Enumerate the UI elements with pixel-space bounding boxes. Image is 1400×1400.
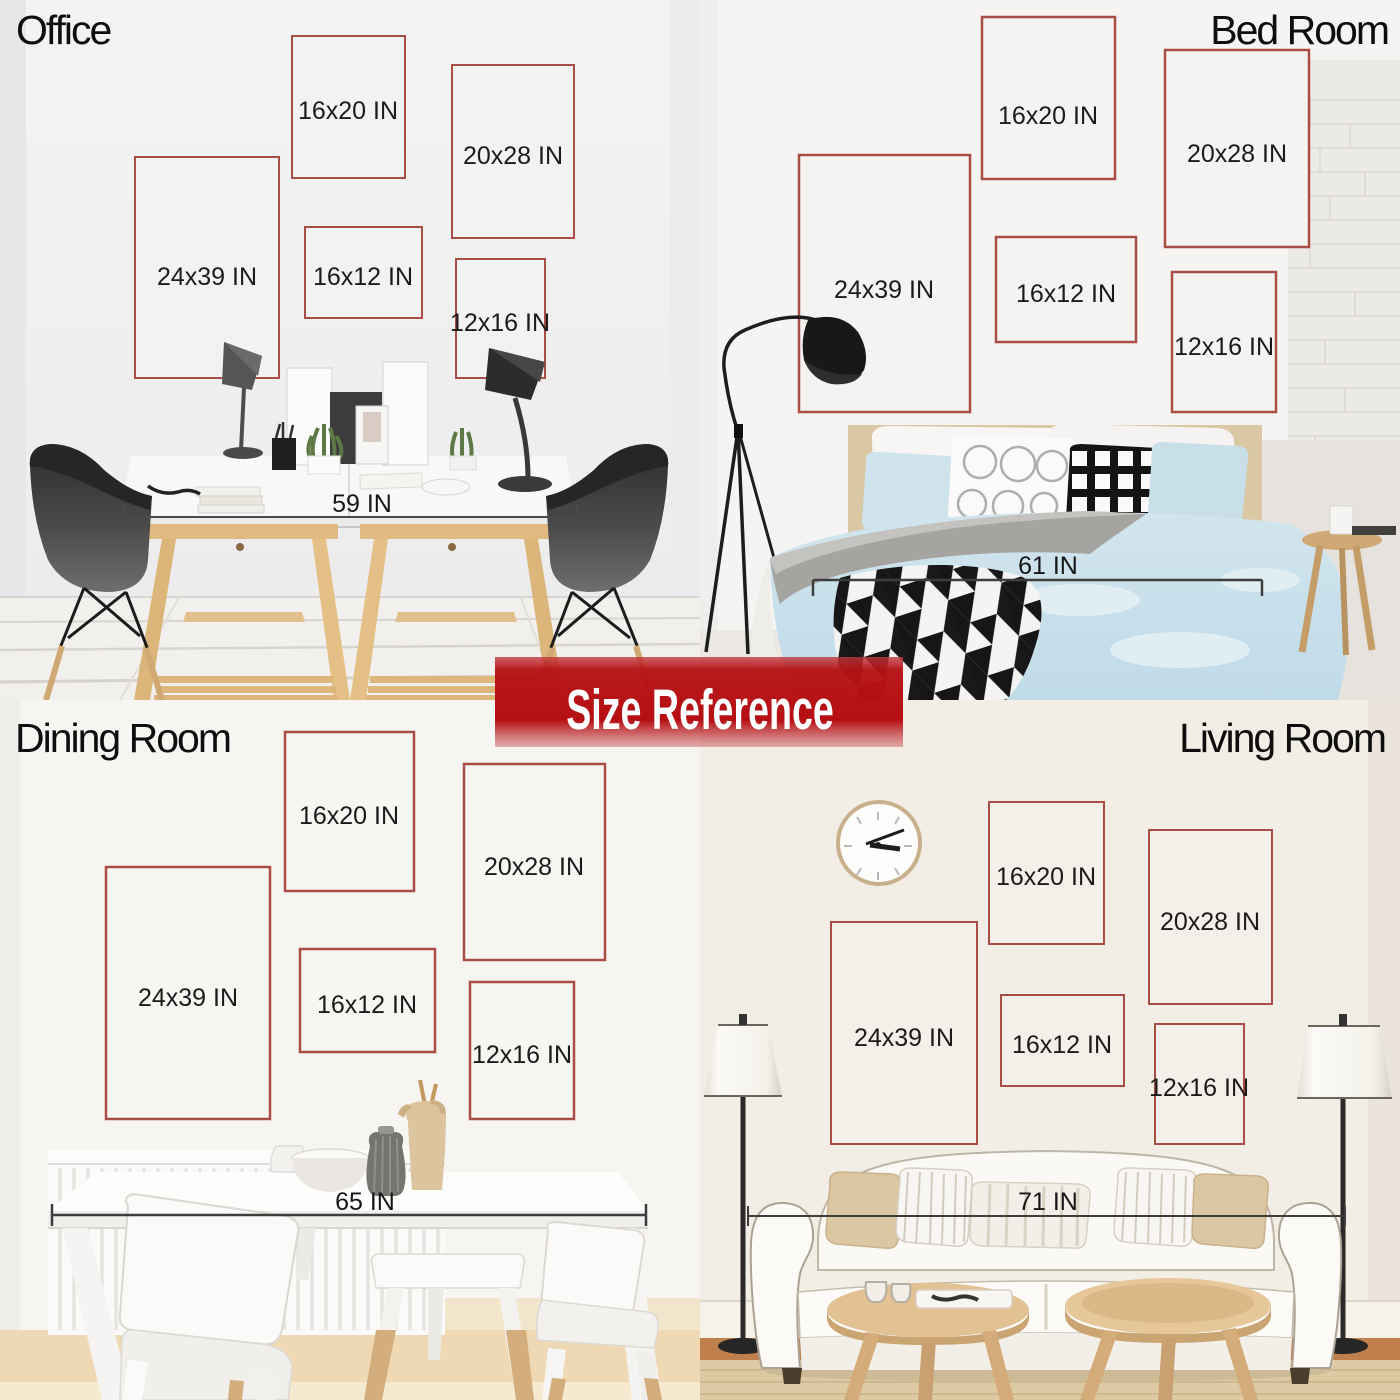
svg-text:71 IN: 71 IN [1018,1188,1078,1216]
svg-text:12x16 IN: 12x16 IN [472,1041,572,1069]
svg-text:20x28 IN: 20x28 IN [1187,140,1287,168]
svg-text:Dining Room: Dining Room [15,715,230,761]
svg-text:16x12 IN: 16x12 IN [317,991,417,1019]
svg-text:24x39 IN: 24x39 IN [138,984,238,1012]
svg-text:Size Reference: Size Reference [566,678,834,742]
svg-text:20x28 IN: 20x28 IN [463,142,563,170]
svg-text:24x39 IN: 24x39 IN [157,263,257,291]
svg-text:12x16 IN: 12x16 IN [1149,1074,1249,1102]
svg-text:20x28 IN: 20x28 IN [484,853,584,881]
svg-text:16x20 IN: 16x20 IN [298,97,398,125]
svg-text:16x12 IN: 16x12 IN [313,263,413,291]
svg-text:Bed Room: Bed Room [1210,7,1388,53]
svg-text:16x20 IN: 16x20 IN [996,863,1096,891]
svg-text:24x39 IN: 24x39 IN [854,1024,954,1052]
svg-text:12x16 IN: 12x16 IN [1174,333,1274,361]
svg-text:Office: Office [16,7,111,53]
svg-text:65 IN: 65 IN [335,1188,395,1216]
svg-text:16x12 IN: 16x12 IN [1012,1031,1112,1059]
svg-text:Living Room: Living Room [1179,715,1385,761]
svg-text:24x39 IN: 24x39 IN [834,276,934,304]
svg-text:59 IN: 59 IN [332,490,392,518]
svg-text:16x12 IN: 16x12 IN [1016,280,1116,308]
svg-text:20x28 IN: 20x28 IN [1160,908,1260,936]
svg-text:61 IN: 61 IN [1018,552,1078,580]
svg-text:16x20 IN: 16x20 IN [998,102,1098,130]
svg-text:12x16 IN: 12x16 IN [450,309,550,337]
svg-text:16x20 IN: 16x20 IN [299,802,399,830]
